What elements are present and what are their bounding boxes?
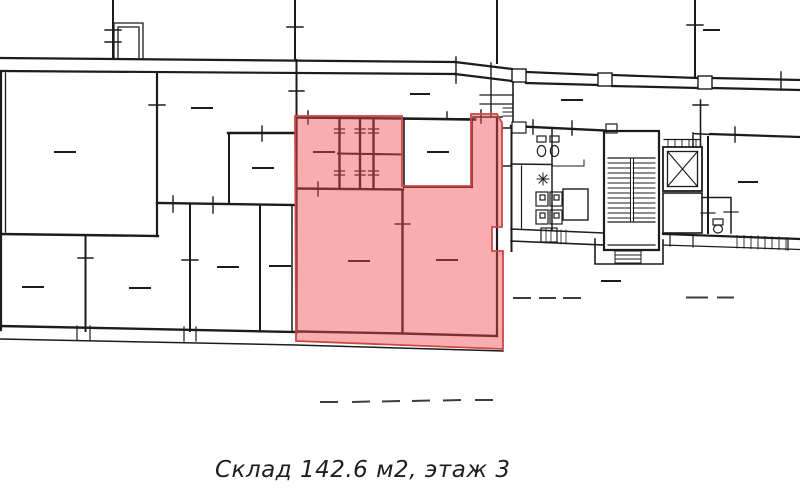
staircase-icon [604, 131, 659, 250]
top-corridor-wall [0, 57, 800, 90]
plan-caption: Склад 142.6 м2, этаж 3 [215, 457, 511, 483]
floor-plan [0, 0, 800, 497]
toilet-icon [537, 136, 559, 157]
upper-partition-walls [105, 0, 719, 77]
floor-plan-page: Склад 142.6 м2, этаж 3 [0, 0, 800, 497]
selected-unit-highlight[interactable] [295, 114, 503, 349]
excluded-room [403, 119, 475, 188]
washbasin-icon [536, 189, 588, 224]
fixture-star-icon [537, 173, 549, 185]
sanitary-block [503, 100, 617, 251]
right-wing-walls [663, 127, 800, 250]
